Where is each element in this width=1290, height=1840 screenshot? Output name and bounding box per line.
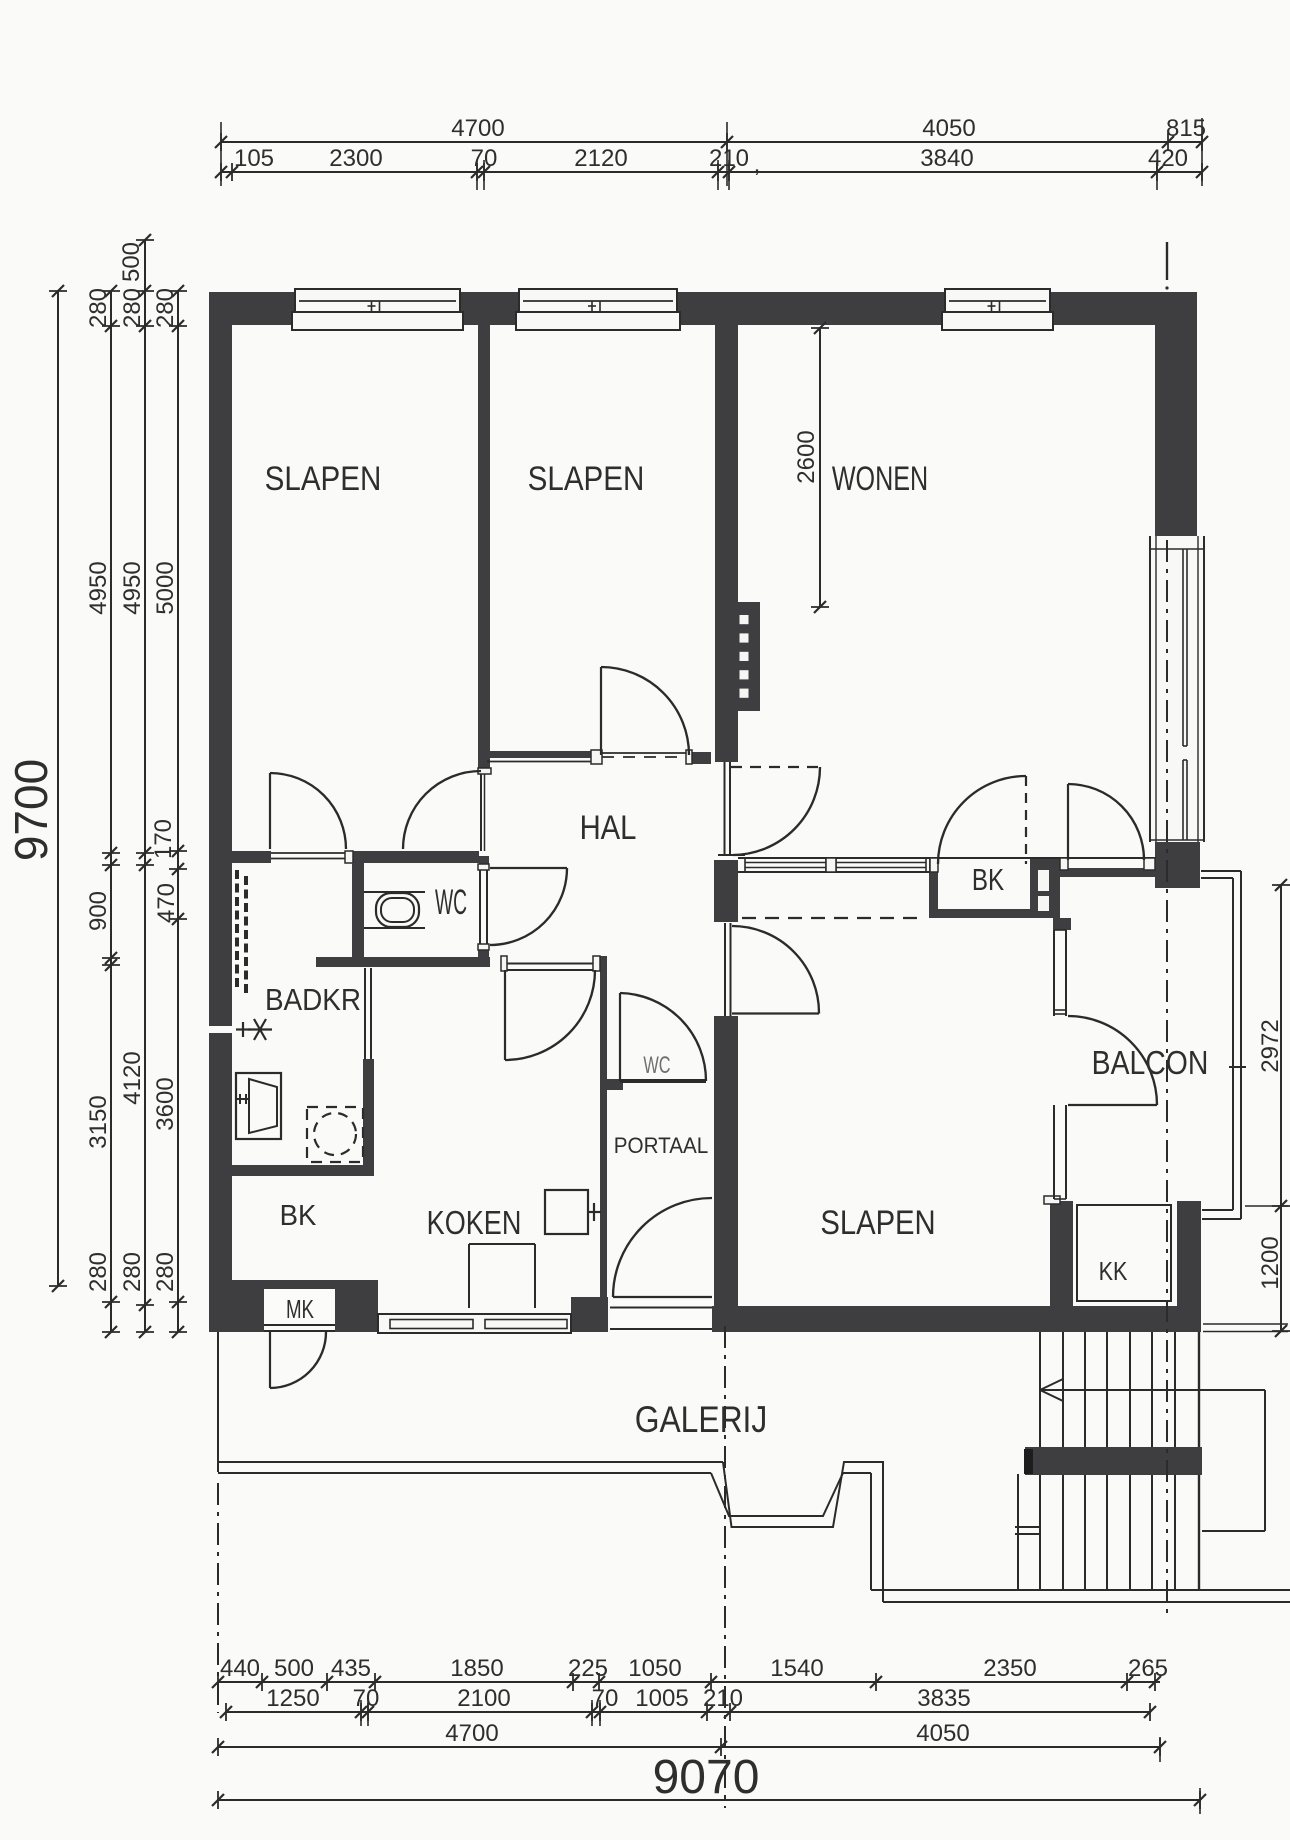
svg-text:280: 280 [152,1252,179,1292]
svg-text:5000: 5000 [152,561,179,614]
svg-text:4050: 4050 [922,115,975,142]
svg-text:70: 70 [471,145,498,172]
svg-text:2972: 2972 [1257,1019,1284,1072]
svg-text:4050: 4050 [916,1720,969,1747]
svg-text:815: 815 [1166,115,1206,142]
svg-text:WC: WC [643,1052,670,1079]
svg-text:280: 280 [119,288,146,328]
svg-text:1250: 1250 [266,1685,319,1712]
svg-text:2350: 2350 [983,1655,1036,1682]
svg-text:SLAPEN: SLAPEN [528,459,645,497]
svg-text:4120: 4120 [119,1051,146,1104]
svg-text:BALCON: BALCON [1092,1044,1209,1082]
svg-text:4700: 4700 [451,115,504,142]
svg-text:HAL: HAL [580,808,637,847]
svg-text:440: 440 [220,1655,260,1682]
svg-text:4700: 4700 [445,1720,498,1747]
svg-text:BK: BK [280,1198,317,1231]
svg-text:2120: 2120 [574,145,627,172]
svg-text:WC: WC [435,882,467,922]
svg-text:70: 70 [592,1685,619,1712]
svg-text:4950: 4950 [119,561,146,614]
svg-text:BK: BK [972,862,1005,897]
svg-text:1200: 1200 [1257,1236,1284,1289]
svg-text:280: 280 [85,1252,112,1292]
svg-text:210: 210 [703,1685,743,1712]
svg-text:265: 265 [1128,1655,1168,1682]
svg-text:,: , [754,151,761,178]
svg-text:500: 500 [274,1655,314,1682]
svg-text:280: 280 [152,288,179,328]
svg-text:500: 500 [118,242,145,282]
svg-text:280: 280 [85,288,112,328]
svg-text:170: 170 [150,819,177,859]
svg-text:9070: 9070 [653,1751,760,1804]
svg-text:2100: 2100 [457,1685,510,1712]
svg-text:2300: 2300 [329,145,382,172]
svg-text:BADKR: BADKR [265,983,361,1018]
svg-text:PORTAAL: PORTAAL [614,1133,709,1158]
svg-text:3600: 3600 [152,1077,179,1130]
svg-text:KK: KK [1099,1257,1128,1286]
svg-text:420: 420 [1148,145,1188,172]
svg-text:KOKEN: KOKEN [427,1206,522,1242]
svg-text:225: 225 [568,1655,608,1682]
svg-text:105: 105 [234,145,274,172]
svg-text:1005: 1005 [635,1685,688,1712]
svg-text:3835: 3835 [917,1685,970,1712]
svg-text:280: 280 [119,1252,146,1292]
svg-text:70: 70 [353,1685,380,1712]
svg-text:900: 900 [85,891,112,931]
svg-text:4950: 4950 [85,561,112,614]
svg-text:GALERIJ: GALERIJ [635,1400,768,1441]
svg-text:WONEN: WONEN [832,460,928,498]
svg-text:SLAPEN: SLAPEN [820,1203,935,1242]
svg-text:9700: 9700 [5,759,57,861]
svg-text:210: 210 [709,145,749,172]
svg-text:1540: 1540 [770,1655,823,1682]
svg-text:SLAPEN: SLAPEN [265,459,382,497]
svg-text:2600: 2600 [793,430,820,483]
svg-text:3150: 3150 [85,1095,112,1148]
svg-text:3840: 3840 [920,145,973,172]
svg-text:470: 470 [153,883,180,923]
svg-text:435: 435 [331,1655,371,1682]
svg-text:MK: MK [286,1294,314,1324]
svg-text:1850: 1850 [450,1655,503,1682]
svg-text:1050: 1050 [628,1655,681,1682]
